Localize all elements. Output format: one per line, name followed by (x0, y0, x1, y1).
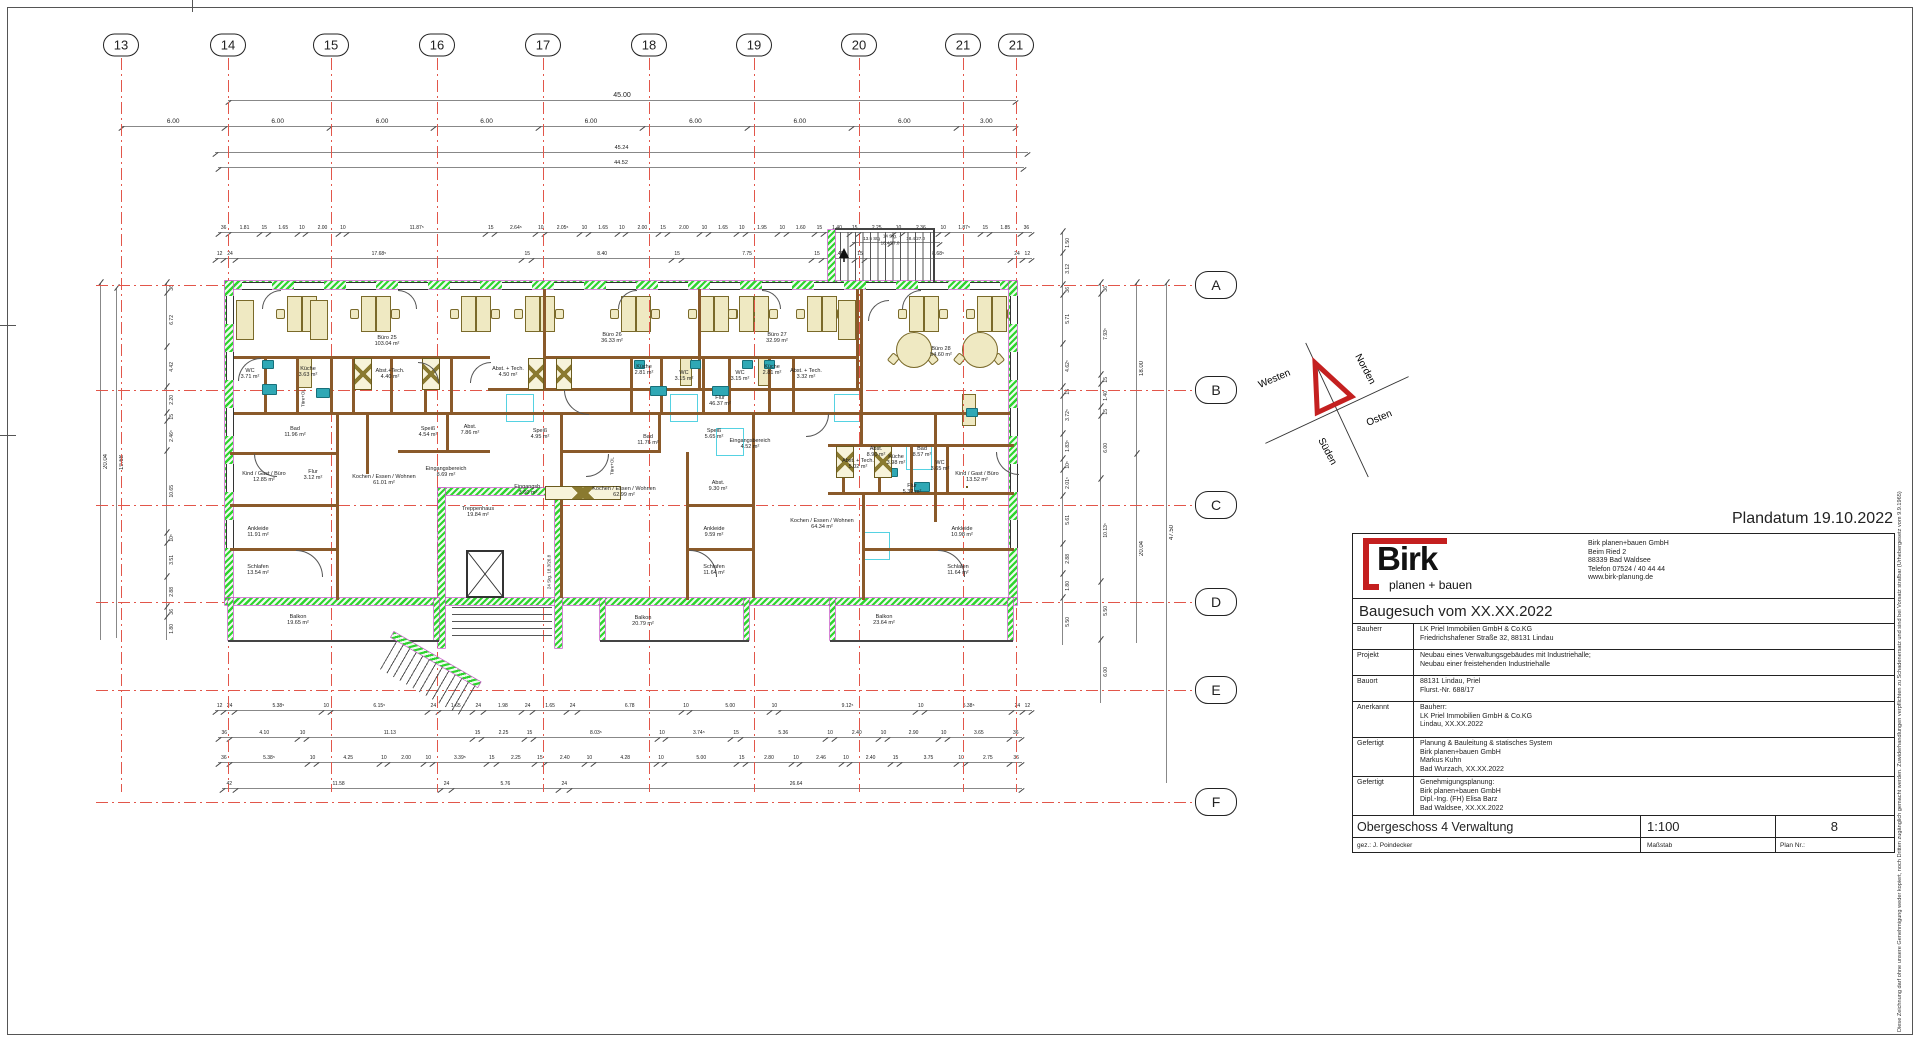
dim-segment: 10 (682, 703, 691, 710)
dim-segment: 6.00 (643, 118, 747, 126)
chair (651, 309, 660, 319)
room-label: Flur3.12 m² (304, 469, 323, 481)
dim-value: 10⁵ (169, 533, 175, 543)
room-label: Schlafen11.64 m² (703, 564, 724, 576)
dim-value: 11.13 (383, 730, 397, 736)
dim-value: 9.12⁵ (841, 703, 855, 709)
window (226, 352, 234, 380)
window (866, 282, 896, 290)
window (554, 282, 584, 290)
exterior-wall (830, 598, 835, 640)
desk (714, 296, 729, 332)
dim-value: 24 (226, 703, 234, 709)
address-line: Beim Ried 2 (1588, 549, 1669, 558)
dim-value: 12 (216, 251, 224, 257)
chair (391, 309, 400, 319)
dim-value: 3.12 (1065, 263, 1071, 275)
grid-bubble-16: 16 (419, 34, 455, 57)
interior-wall (488, 388, 862, 391)
room-label: Abst. + Tech.4.50 m² (492, 366, 524, 378)
fold-mark (0, 325, 16, 326)
room-area: 11.64 m² (703, 570, 724, 576)
dim-segment: 2.25 (482, 730, 524, 737)
scale-label: Maßstab (1640, 838, 1775, 852)
logo-name: Birk (1377, 540, 1437, 578)
room-area: 23.64 m² (873, 620, 895, 626)
sanitary-fixture (316, 388, 330, 398)
grid-bubble-B: B (1195, 376, 1237, 404)
dim-segment: 15 (737, 755, 746, 762)
row-line: LK Priel Immobilien GmbH & Co.KG (1420, 626, 1553, 635)
desk (525, 296, 540, 332)
dim-value: 2.00 (678, 225, 690, 231)
desk-cluster (352, 296, 398, 332)
dim-segment: 10 (657, 755, 666, 762)
room-label: WC3.65 m² (931, 460, 950, 472)
room-label: Ankleide9.59 m² (703, 526, 724, 538)
room-label: Balkon19.65 m² (287, 614, 309, 626)
dim-segment: 6.00 (330, 118, 434, 126)
dim-value: 1.65 (277, 225, 289, 231)
dim-segment: 24 (441, 781, 453, 788)
desk (838, 300, 856, 340)
room-area: 13.54 m² (247, 570, 269, 576)
address-line: www.birk-planung.de (1588, 574, 1669, 583)
dim-value: 5.50 (1065, 616, 1071, 628)
copyright-notice: Diese Zeichnung darf ohne unsere Genehmi… (1897, 330, 1903, 1032)
dim-segment: 1.65 (533, 703, 567, 710)
window (606, 282, 636, 290)
row-line: Bad Waldsee, XX.XX.2022 (1420, 805, 1503, 814)
row-content: Neubau eines Verwaltungsgebäudes mit Ind… (1414, 650, 1591, 675)
dim-segment: 10 (737, 225, 746, 232)
grid-bubble-E: E (1195, 676, 1237, 704)
room-area: 3.60 m² (514, 490, 542, 496)
stair-treads (452, 600, 552, 642)
window (450, 282, 480, 290)
dim-segment: 5.00 (665, 755, 737, 762)
exterior-wall (225, 281, 233, 604)
dim-segment: 10 (298, 225, 307, 232)
round-table (962, 332, 998, 368)
dim-segment: 8.03⁵ (534, 730, 657, 737)
room-area: 4.54 m² (419, 432, 438, 438)
dim-value: 15 (261, 225, 269, 231)
row-line: 88131 Lindau, Priel (1420, 678, 1480, 687)
dim-value: 5.71 (1065, 313, 1071, 325)
grid-bubble-19: 19 (736, 34, 772, 57)
dim-value: 6.00 (688, 118, 703, 125)
grid-bubble-A: A (1195, 271, 1237, 299)
logo-tagline: planen + bauen (1389, 578, 1472, 592)
room-area: 103.04 m² (375, 341, 400, 347)
room-label: Speiß4.54 m² (419, 426, 438, 438)
dim-segment: 26.64 (570, 781, 1022, 788)
dim-value: 5.36 (777, 730, 789, 736)
dim-value: 15 (488, 755, 496, 761)
dim-value: 8.03⁵ (589, 730, 603, 736)
dim-segment: 1.87⁵ (948, 225, 981, 232)
dim-segment: 3.00 (957, 118, 1017, 126)
grid-line-E (96, 690, 1240, 691)
dim-left-chain: 366.724.422.20152.46⁵10.6510⁵3.512.88361… (166, 283, 176, 640)
window (658, 282, 688, 290)
dim-segment: 5.38⁵ (230, 755, 308, 762)
dim-value: 6.00 (584, 118, 599, 125)
room-area: 9.59 m² (703, 532, 724, 538)
chair (276, 309, 285, 319)
titleblock-title: Baugesuch vom XX.XX.2022 (1353, 599, 1894, 624)
dim-segment: 12 (1023, 251, 1032, 258)
dim-value: 11.58 (332, 781, 346, 787)
elevator-shaft (466, 550, 504, 598)
dim-chain-bottom3: 365.38⁵104.25102.00103.39⁵152.25152.4010… (218, 752, 1022, 763)
room-label: Abst. + Tech.5.02 m² (842, 458, 874, 470)
window (1010, 520, 1018, 548)
room-area: 10.98 m² (951, 532, 973, 538)
grid-line-15 (331, 58, 332, 792)
grid-bubble-21: 21 (945, 34, 981, 57)
dim-segment: 24 (559, 781, 571, 788)
window (762, 282, 792, 290)
desk (310, 300, 328, 340)
room-label: Eingangsb.3.60 m² (514, 484, 542, 496)
room-label: Schlafen11.64 m² (947, 564, 968, 576)
storage-box (556, 358, 572, 390)
room-area: 8.90 m² (867, 452, 886, 458)
dim-value: 1.87⁵ (957, 225, 971, 231)
room-area: 64.34 m² (790, 524, 854, 530)
grid-bubble-21: 21 (998, 34, 1034, 57)
dim-segment: 17.68⁵ (236, 251, 523, 258)
desk (236, 300, 254, 340)
room-area: 54.60 m² (930, 352, 952, 358)
dim-value: 10 (298, 225, 306, 231)
dim-value: 1.80 (169, 623, 175, 635)
dim-value: 15 (816, 225, 824, 231)
dim-value: 15 (659, 225, 667, 231)
grid-line-18 (649, 58, 650, 792)
dim-value: 2.05⁵ (556, 225, 570, 231)
room-label: Abst. + Tech.3.32 m² (790, 368, 822, 380)
dim-value: 26.64 (789, 781, 804, 787)
dim-value: 12 (1024, 703, 1032, 709)
compass-south-label: Süden (1315, 436, 1338, 467)
chair (966, 309, 975, 319)
titleblock-row: GefertigtPlanung & Bauleitung & statisch… (1353, 738, 1894, 777)
rooflight (862, 532, 890, 560)
window (1010, 296, 1018, 324)
dim-value: 8.40 (596, 251, 608, 257)
interior-wall (230, 452, 338, 455)
dim-right-4750: 47.50 (1166, 283, 1176, 783)
dim-segment: 2.90 (888, 730, 939, 737)
dim-value: 10 (826, 730, 834, 736)
dim-value: 1.65 (544, 703, 556, 709)
stair-annex-wall (933, 228, 935, 284)
desk (992, 296, 1007, 332)
door-swing-arc (586, 454, 609, 477)
chair (688, 309, 697, 319)
dim-value: 1.65 (717, 225, 729, 231)
room-area: 4.50 m² (492, 372, 524, 378)
dim-segment: 1.65 (589, 225, 618, 232)
door-swing-arc (902, 290, 921, 309)
address-line: Birk planen+bauen GmbH (1588, 540, 1669, 549)
drawing-sheet: 13141516171819202121ABCDEF 45.006.006.00… (0, 0, 1920, 1042)
room-label: Küche2.81 m² (763, 364, 782, 376)
dim-grid-spans: 6.006.006.006.006.006.006.006.003.00 (121, 116, 1016, 127)
dim-value: 24 (430, 703, 438, 709)
dim-value: 5.76 (500, 781, 512, 787)
dim-segment: 4.42 (167, 347, 176, 387)
dim-value: 10.13⁵ (1103, 522, 1109, 539)
dim-segment: 44.52 (218, 160, 1024, 167)
dim-value: 10 (581, 225, 589, 231)
interior-wall (230, 504, 338, 507)
room-label: Speiß5.65 m² (705, 428, 724, 440)
dim-segment: 10 (380, 755, 389, 762)
dim-segment: 15 (659, 225, 668, 232)
window (226, 520, 234, 548)
desk-cluster (968, 296, 1014, 332)
dim-value: 1.60 (795, 225, 807, 231)
dim-value: 1.98 (497, 703, 509, 709)
dim-value: 24 (443, 781, 451, 787)
dim-segment: 10 (658, 730, 667, 737)
dim-value: 1.65 (597, 225, 609, 231)
interior-wall (630, 356, 633, 414)
dim-value: 2.46⁵ (169, 429, 175, 443)
dim-segment: 2.00 (306, 225, 338, 232)
dim-segment: 1.65 (709, 225, 738, 232)
room-label: Abst.8.90 m² (867, 446, 886, 458)
dim-value: 2.20 (169, 394, 175, 406)
row-content: 88131 Lindau, PrielFlurst.-Nr. 688/17 (1414, 676, 1480, 701)
chair (350, 309, 359, 319)
row-line: Birk planen+bauen GmbH (1420, 788, 1503, 797)
dim-value: 2.75 (982, 755, 994, 761)
door-swing-arc (806, 414, 829, 437)
dim-value: 10 (771, 703, 779, 709)
grid-bubble-F: F (1195, 788, 1237, 816)
logo-bracket (1363, 538, 1369, 590)
dim-value: 15 (523, 251, 531, 257)
dim-value: 3.39⁵ (453, 755, 467, 761)
row-label: Gefertigt (1353, 777, 1414, 815)
dim-value: 24 (561, 781, 569, 787)
dim-value: 10 (299, 730, 307, 736)
room-area: 8.57 m² (913, 452, 932, 458)
grid-line-13 (121, 58, 122, 792)
dim-value: 24 (474, 703, 482, 709)
interior-wall (660, 356, 663, 414)
exterior-wall (744, 598, 749, 640)
dim-chain-bottom4: 4211.58245.762426.64 (222, 778, 1022, 789)
sanitary-fixture (690, 360, 701, 369)
dim-segment: 6.00 (434, 118, 538, 126)
dim-segment: 15 (487, 755, 496, 762)
room-label: Küche3.98 m² (887, 454, 906, 466)
dim-segment: 10 (792, 755, 801, 762)
room-label: Ankleide10.98 m² (951, 526, 973, 538)
titleblock-row: GefertigtGenehmigungsplanung:Birk planen… (1353, 777, 1894, 816)
dim-value: 15 (474, 730, 482, 736)
grid-bubble-14: 14 (210, 34, 246, 57)
dim-segment: 15 (260, 225, 269, 232)
dim-value: 2.90 (908, 730, 920, 736)
grid-line-F (96, 802, 1240, 803)
dim-segment: 10 (939, 730, 948, 737)
dim-value: 2.25 (510, 755, 522, 761)
dim-segment: 15 (981, 225, 990, 232)
room-label: Büro 2732.99 m² (766, 332, 788, 344)
room-label: Eingangsbereich8.69 m² (426, 466, 467, 478)
room-area: 13.52 m² (955, 477, 998, 483)
grid-bubble-D: D (1195, 588, 1237, 616)
dim-value: 2.88 (169, 586, 175, 598)
compass-north-label: Norden (1352, 352, 1377, 386)
window (1010, 408, 1018, 436)
round-table (896, 332, 932, 368)
door-swing-arc (296, 550, 323, 577)
desk (699, 296, 714, 332)
titleblock-footer: Obergeschoss 4 Verwaltung 1:100 8 (1353, 816, 1894, 838)
dim-segment: 6.00 (1101, 640, 1110, 703)
dim-value: 6.00 (270, 118, 285, 125)
dim-value: 1.95 (756, 225, 768, 231)
dim-value: 3.00 (979, 118, 994, 125)
dim-value: 2.80 (763, 755, 775, 761)
exterior-wall (1008, 598, 1013, 640)
room-label: Büro 2854.60 m² (930, 346, 952, 358)
dim-value: 24 (1013, 251, 1021, 257)
dim-segment: 5.38⁵ (235, 703, 322, 710)
dim-segment: 2.40 (545, 755, 585, 762)
room-area: 5.02 m² (842, 464, 874, 470)
dim-segment: 12 (1023, 703, 1032, 710)
row-label: Gefertigt (1353, 738, 1414, 776)
dim-right-chain2: 367.93⁵151.40156.0010.13⁵5.506.00 (1100, 283, 1110, 703)
dim-segment: 6.00 (852, 118, 956, 126)
rooflight (670, 394, 698, 422)
dim-value: 6.00 (479, 118, 494, 125)
dim-value: 36 (1023, 225, 1031, 231)
dim-value: 36 (220, 755, 228, 761)
desk-cluster (452, 296, 498, 332)
dim-value: 10 (792, 755, 800, 761)
titleblock-row: AnerkanntBauherr:LK Priel Immobilien Gmb… (1353, 702, 1894, 738)
room-label: Abst.9.30 m² (709, 480, 728, 492)
dim-segment: 24 (224, 251, 235, 258)
dim-value: 44.52 (613, 160, 629, 166)
titleblock-subfooter: gez.: J. Poindecker Maßstab Plan Nr.: (1353, 838, 1894, 852)
dim-value: 1.81 (239, 225, 251, 231)
window (226, 464, 234, 492)
dim-segment: 10 (957, 755, 966, 762)
desk-single (838, 300, 858, 340)
company-address: Birk planen+bauen GmbHBeim Ried 288339 B… (1588, 540, 1669, 583)
dim-segment: 20.04 (101, 283, 110, 640)
window (346, 282, 376, 290)
interior-wall (228, 412, 1015, 415)
dim-segment: 24 (224, 703, 235, 710)
dim-segment: 1.81 (229, 225, 259, 232)
dim-value: 2.46 (815, 755, 827, 761)
dim-segment: 20.04 (1137, 454, 1146, 643)
dim-value: 5.00 (695, 755, 707, 761)
door-swing-arc (868, 300, 889, 321)
dim-value: 18.00 (1139, 360, 1145, 377)
dim-value: 2.25 (498, 730, 510, 736)
dim-value: 15 (487, 225, 495, 231)
chair (491, 309, 500, 319)
interior-wall (296, 356, 299, 414)
dim-segment: 10 (424, 755, 433, 762)
window (226, 296, 234, 324)
room-label: Flur46.37 m² (709, 395, 731, 407)
room-area: 3.65 m² (931, 466, 950, 472)
dim-segment: 4.62⁵ (1063, 344, 1072, 388)
interior-wall (450, 356, 453, 414)
dim-value: 10 (657, 755, 665, 761)
interior-wall (390, 356, 393, 414)
dim-segment: 4.25 (317, 755, 380, 762)
desk (977, 296, 992, 332)
room-area: 2.81 m² (763, 370, 782, 376)
dim-value: 24 (1014, 703, 1022, 709)
dim-value: 47.50 (1169, 524, 1175, 541)
dim-chain-bottom1: 12245.38⁵106.15⁵241.65241.98241.65246.78… (215, 700, 1032, 711)
dim-value: 2.64⁵ (509, 225, 523, 231)
exterior-wall (828, 230, 835, 286)
dim-value: 1.83⁵ (1065, 439, 1071, 453)
logo-bracket (1363, 584, 1379, 590)
chair (610, 309, 619, 319)
dim-value: 45.00 (612, 92, 632, 99)
grid-bubble-20: 20 (841, 34, 877, 57)
dim-segment: 3.75 (900, 755, 957, 762)
room-area: 36.33 m² (601, 338, 623, 344)
dim-segment: 2.40 (835, 730, 879, 737)
dim-segment: 12 (215, 703, 224, 710)
room-area: 32.99 m² (766, 338, 788, 344)
room-label: WC3.15 m² (675, 370, 694, 382)
dim-value: 15 (1103, 376, 1109, 384)
dim-segment: 10 (308, 755, 317, 762)
dim-segment: 4.10 (230, 730, 298, 737)
exterior-wall (1009, 281, 1017, 604)
dim-total-45: 45.00 (228, 90, 1016, 101)
title-block: Birk planen + bauen Birk planen+bauen Gm… (1352, 533, 1895, 853)
room-label: Balkon23.64 m² (873, 614, 895, 626)
exterior-wall (438, 488, 562, 495)
grid-bubble-17: 17 (525, 34, 561, 57)
dim-segment: 10 (879, 730, 888, 737)
dim-value: 5.38⁵ (262, 755, 276, 761)
room-label: Eingangsbereich4.52 m² (730, 438, 771, 450)
room-area: 4.52 m² (730, 444, 771, 450)
dim-value: 15 (982, 225, 990, 231)
titleblock-rows: BauherrLK Priel Immobilien GmbH & Co.KGF… (1353, 624, 1894, 816)
compass-rose: Norden Westen Osten Süden (1252, 330, 1422, 490)
row-content: Bauherr:LK Priel Immobilien GmbH & Co.KG… (1414, 702, 1532, 737)
room-area: 11.96 m² (284, 432, 305, 438)
room-area: 62.99 m² (592, 492, 656, 498)
dim-value: 15 (892, 755, 900, 761)
interior-wall (366, 412, 369, 474)
room-label: Balkon20.79 m² (632, 615, 654, 627)
